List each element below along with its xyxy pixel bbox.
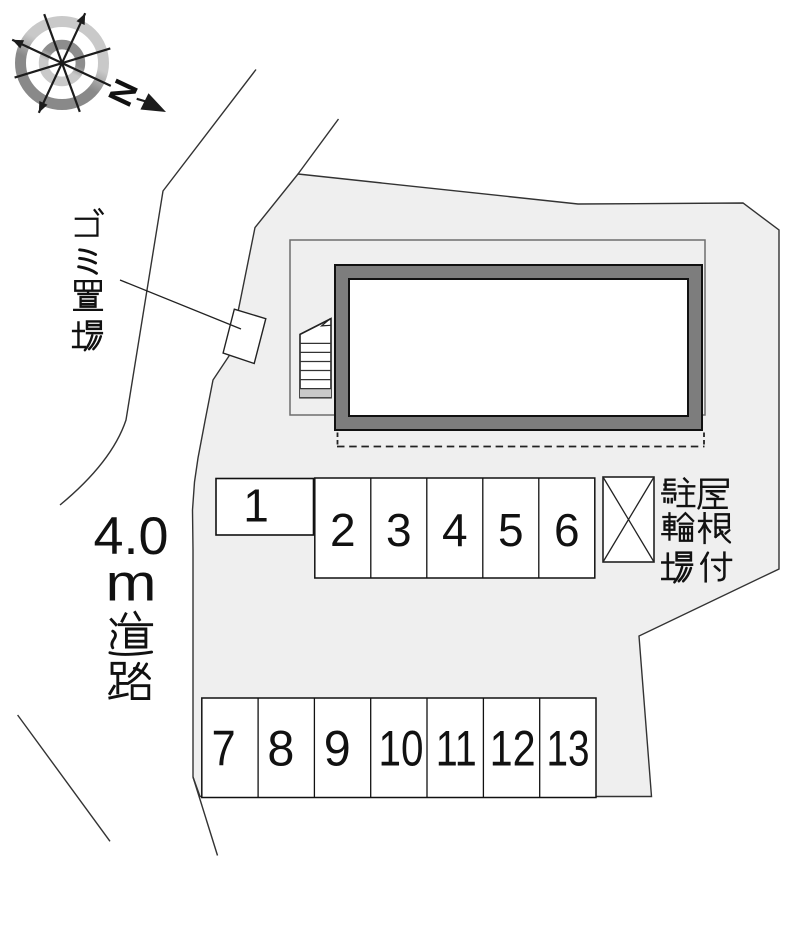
svg-text:8: 8 <box>267 720 294 776</box>
svg-text:9: 9 <box>324 720 351 776</box>
svg-text:6: 6 <box>554 504 580 556</box>
svg-text:5: 5 <box>498 504 524 556</box>
svg-text:2: 2 <box>330 504 356 556</box>
svg-text:11: 11 <box>436 720 477 776</box>
svg-text:4: 4 <box>442 504 468 556</box>
svg-text:7: 7 <box>212 720 236 776</box>
svg-text:3: 3 <box>386 504 412 556</box>
svg-text:13: 13 <box>547 720 590 776</box>
svg-text:12: 12 <box>490 720 536 776</box>
svg-text:1: 1 <box>243 479 269 531</box>
svg-text:10: 10 <box>379 720 424 776</box>
svg-text:m: m <box>106 554 157 612</box>
